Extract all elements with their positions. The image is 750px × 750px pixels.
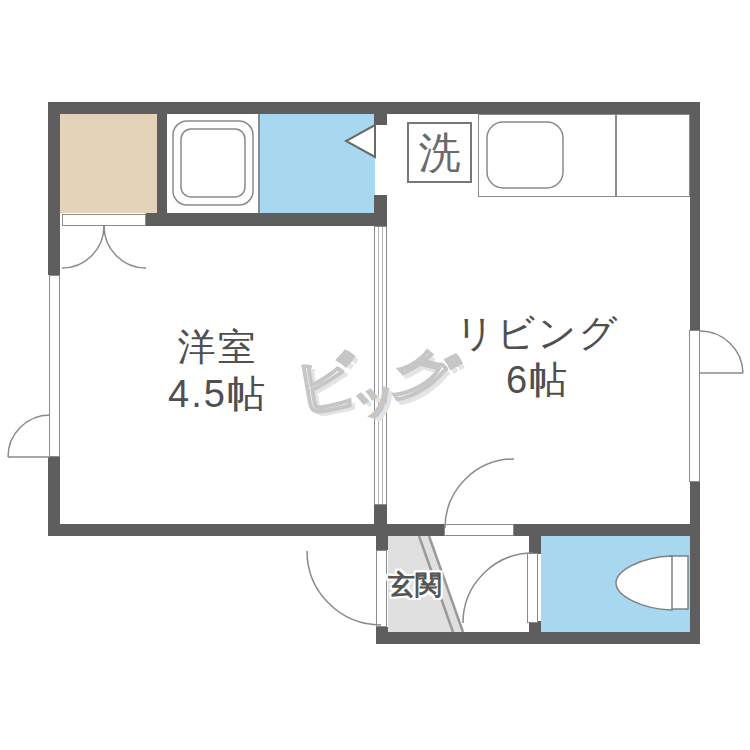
left-pane-arc <box>8 415 50 457</box>
wall-right-upper <box>690 102 700 330</box>
western-room-label: 洋室 4.5帖 <box>120 324 315 418</box>
closet-door-arc-right <box>104 226 146 268</box>
wall-entry-stub-bottom <box>376 627 388 644</box>
living-door-arc <box>445 459 514 528</box>
bathtub-icon <box>173 121 253 205</box>
washing-machine-icon: 洗 <box>407 122 472 183</box>
wall-divider-mid <box>374 195 387 226</box>
bathtub-inner <box>181 129 245 197</box>
wall-toilet-stub-bottom <box>529 621 541 644</box>
toilet-door-arc <box>463 553 533 623</box>
washer-label: 洗 <box>409 124 470 181</box>
closet-door-arc-left <box>62 226 104 268</box>
wall-left-upper <box>48 102 60 275</box>
window-left <box>49 275 60 457</box>
living-room-label: リビング 6帖 <box>440 310 635 404</box>
living-room-size: 6帖 <box>440 357 635 404</box>
western-room-size: 4.5帖 <box>120 371 315 418</box>
wall-stub-closet <box>157 114 167 213</box>
entry-door-arc <box>307 551 381 625</box>
wall-band-under-bath <box>146 213 387 226</box>
kitchen-counter <box>478 114 690 197</box>
window-right <box>689 330 700 482</box>
bathroom-area <box>260 114 375 213</box>
wall-top <box>48 102 700 114</box>
wall-right-lower <box>690 482 700 644</box>
wall-entry-stub-top <box>376 536 388 550</box>
entrance-label: 玄関 <box>388 567 442 603</box>
closet-area <box>60 114 157 213</box>
closet-doors-strip <box>62 214 146 226</box>
right-pane-arc <box>700 331 743 373</box>
wall-toilet-stub-top <box>529 536 541 554</box>
floor-plan: 洗 ビ ッ <box>0 0 750 750</box>
counter-divider-line <box>615 114 617 197</box>
wall-divider-bottom <box>374 505 387 536</box>
wall-bottom-right <box>514 524 690 536</box>
bath-divider-line <box>258 114 260 213</box>
living-room-name: リビング <box>440 310 635 357</box>
entry-door-leaf <box>376 550 387 627</box>
toilet-area <box>541 536 690 632</box>
wall-divider-top <box>374 114 387 125</box>
living-door-leaf <box>444 524 514 536</box>
toilet-door-leaf <box>527 553 538 623</box>
western-room-name: 洋室 <box>120 324 315 371</box>
